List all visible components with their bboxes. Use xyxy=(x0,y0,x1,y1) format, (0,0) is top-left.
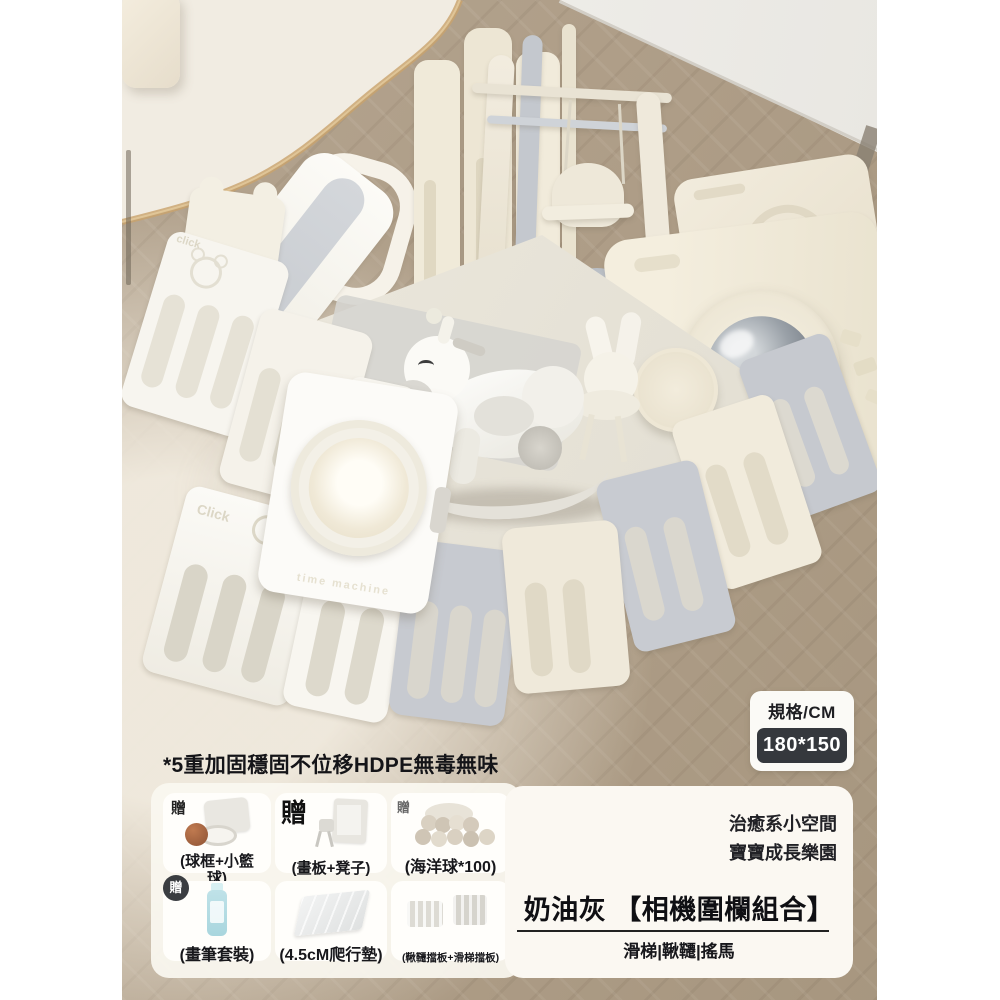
stool xyxy=(122,0,180,88)
gift-caption: (畫板+凳子) xyxy=(275,861,387,878)
panel-slot xyxy=(406,600,440,700)
horse-eye xyxy=(418,360,434,371)
claim-text: *5重加固穩固不位移HDPE無毒無味 xyxy=(163,749,499,779)
panel-slot xyxy=(741,449,792,547)
spec-badge: 規格/CM 180*150 xyxy=(750,691,854,771)
camera-top-button xyxy=(633,253,680,273)
camera-deco xyxy=(839,328,862,347)
slogan: 治癒系小空間 寶寶成長樂園 xyxy=(729,810,837,868)
slogan-line2: 寶寶成長樂園 xyxy=(729,839,837,868)
panel-slot xyxy=(303,598,347,699)
crawl-mat-icon xyxy=(275,881,387,941)
panel-slot xyxy=(661,515,706,613)
panel-slot xyxy=(161,562,210,665)
click-emboss-text: Click xyxy=(195,501,231,525)
furniture-leg xyxy=(126,150,131,285)
gift-item-boards: (鞦韆擋板+滑梯擋板) xyxy=(391,881,510,961)
panel-slot xyxy=(524,582,554,678)
horse-saddle xyxy=(474,396,534,436)
panel-slot xyxy=(562,578,592,674)
camera-deco xyxy=(853,356,877,376)
easel-stool-icon xyxy=(275,793,387,857)
paint-bottle-icon xyxy=(163,881,271,945)
gift-caption: (海洋球*100) xyxy=(391,859,510,877)
front-fence-panel-cream xyxy=(501,519,631,694)
camera-door-panel: time machine xyxy=(256,370,461,616)
slogan-line1: 治癒系小空間 xyxy=(729,810,837,839)
gift-caption: (4.5cM爬行墊) xyxy=(275,947,387,965)
gift-item-mat: (4.5cM爬行墊) xyxy=(275,881,387,961)
horse-topknot xyxy=(426,308,442,324)
gift-caption: (鞦韆擋板+滑梯擋板) xyxy=(391,953,510,965)
gift-item-easel: 贈 (畫板+凳子) xyxy=(275,793,387,873)
gift-item-paint: 贈 (畫筆套裝) xyxy=(163,881,271,961)
gift-item-balls: 贈 (海洋球*100) xyxy=(391,793,510,873)
panel-slot xyxy=(622,524,667,622)
panel-slot xyxy=(342,606,386,707)
spec-value: 180*150 xyxy=(757,728,847,763)
panel-slot xyxy=(239,582,288,685)
panel-slot xyxy=(473,608,507,708)
gift-item-hoop: 贈 (球框+小籃球) xyxy=(163,793,271,873)
backboard-slot xyxy=(693,183,746,201)
guard-boards-icon xyxy=(391,881,510,941)
ocean-balls-icon xyxy=(391,793,510,853)
promo-panel: 治癒系小空間 寶寶成長樂園 奶油灰 【相機圍欄組合】 滑梯|鞦韆|搖馬 xyxy=(505,786,853,978)
gift-panel: 贈 (球框+小籃球) 贈 (畫板+凳子) 贈 xyxy=(151,783,522,978)
title-underline xyxy=(517,930,829,932)
spec-label: 規格/CM xyxy=(750,698,854,723)
product-subtitle: 滑梯|鞦韆|搖馬 xyxy=(505,937,853,962)
basketball-hoop-icon xyxy=(163,793,271,857)
camera-deco xyxy=(864,388,877,405)
horse-wheel xyxy=(518,426,562,470)
panel-slot xyxy=(440,604,474,704)
panel-slot xyxy=(200,572,249,675)
panel-slot xyxy=(424,180,436,290)
gift-caption: (畫筆套裝) xyxy=(163,947,271,965)
product-title: 奶油灰 【相機圍欄組合】 xyxy=(505,888,853,927)
